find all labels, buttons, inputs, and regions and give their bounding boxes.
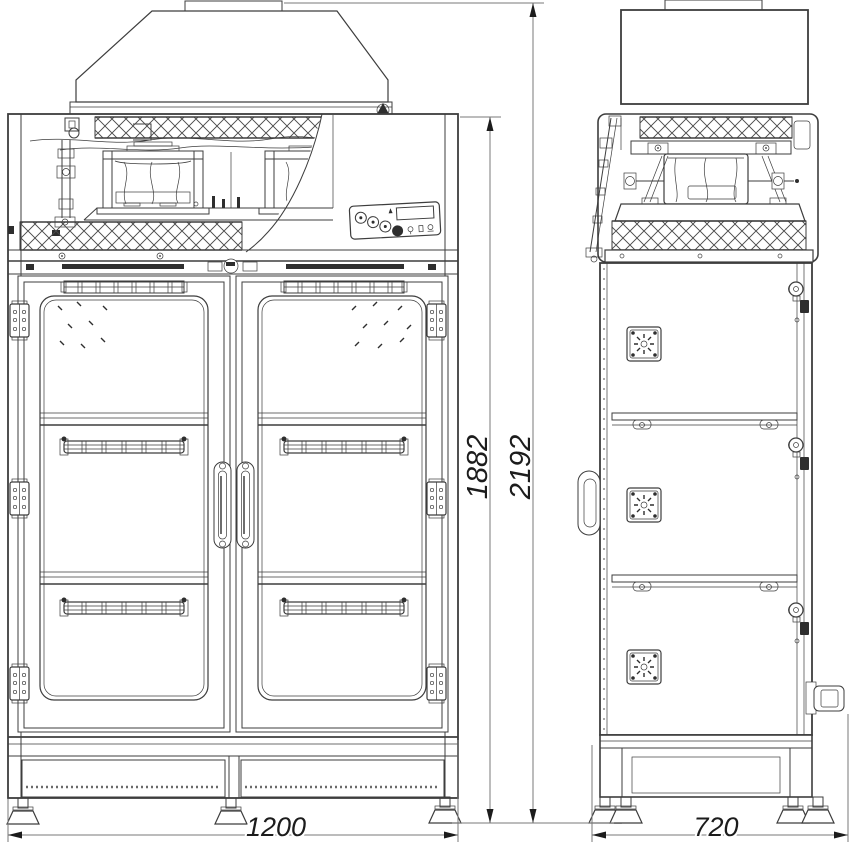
side-view: [578, 0, 844, 823]
leveling-foot: [429, 797, 461, 823]
leveling-foot: [215, 798, 247, 824]
leveling-foot: [7, 798, 39, 824]
drawing-sheet: 1200 720 1882 2192: [0, 0, 850, 842]
bottom-filter-front: [20, 222, 242, 250]
bottom-filter-side: [612, 221, 806, 250]
base-side: [589, 735, 834, 823]
dim-label-cabinet-height: 1882: [462, 435, 494, 500]
exhaust-duct-side: [621, 0, 808, 104]
hinge: [10, 664, 29, 703]
fan-plinth-side: [615, 204, 805, 221]
cabinet-technical-drawing: 1200 720 1882 2192: [0, 0, 850, 842]
top-filter-front: [95, 117, 322, 138]
dimension-cabinet-height: 1882: [460, 117, 501, 823]
dim-label-overall-height: 2192: [505, 435, 537, 501]
control-panel: [349, 202, 441, 240]
door-right[interactable]: [236, 276, 448, 732]
dim-label-front-width: 1200: [246, 812, 306, 842]
door-left[interactable]: [18, 276, 230, 732]
hinge: [10, 479, 29, 518]
dim-label-side-depth: 720: [693, 812, 738, 842]
power-socket: [806, 682, 844, 714]
door-handle-right[interactable]: [237, 462, 254, 548]
cabinet-body-side: [578, 263, 844, 735]
hinge: [427, 301, 446, 340]
leveling-foot: [802, 797, 834, 823]
top-filter-side: [640, 117, 792, 138]
door-handle-left[interactable]: [214, 462, 231, 548]
hinge: [427, 479, 446, 518]
exhaust-duct-front: [70, 1, 392, 116]
front-view: [7, 1, 461, 824]
plenum-compartment-side: [586, 114, 818, 266]
hinge: [427, 664, 446, 703]
hinge: [10, 301, 29, 340]
side-door-handle[interactable]: [578, 471, 600, 535]
